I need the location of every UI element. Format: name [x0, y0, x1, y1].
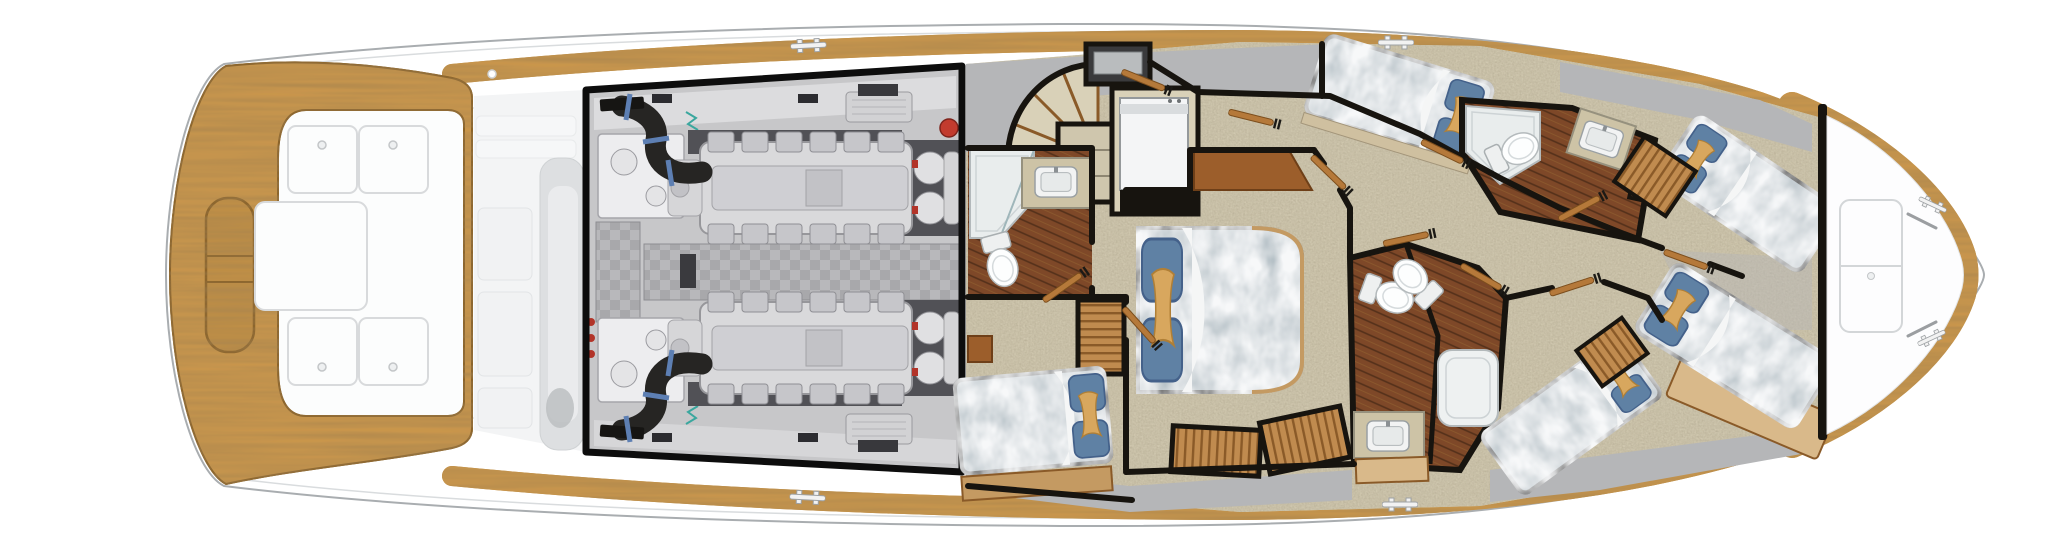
- mezzanine-step: [476, 116, 576, 136]
- laundry: [1112, 88, 1198, 214]
- deck-hatch-engine-access: [255, 202, 367, 310]
- bracket: [652, 94, 672, 103]
- built-in-desk: [1194, 152, 1312, 190]
- mezzanine-module: [478, 388, 532, 428]
- master-berth: [1138, 228, 1302, 392]
- mezzanine-seat-cushion: [548, 186, 578, 422]
- deck-hatch: [359, 318, 428, 385]
- mezzanine-module: [478, 292, 532, 376]
- walkway-grate: [680, 254, 696, 288]
- fire-extinguisher: [940, 119, 958, 137]
- turbo: [914, 152, 946, 184]
- deck-hatch: [359, 126, 428, 193]
- walkway-checker-plate: [596, 222, 640, 322]
- day-head: [968, 148, 1092, 297]
- engine-room: [586, 66, 962, 472]
- accommodations: [954, 34, 1841, 512]
- bow-deck: [1827, 116, 1964, 434]
- cedar-closet: [1078, 300, 1124, 374]
- mezzanine-ghost: [474, 90, 586, 452]
- cabinet-mirror: [1094, 52, 1142, 74]
- step-box: [968, 336, 992, 362]
- vanity-sink: [1035, 167, 1077, 197]
- yacht-floorplan: [0, 0, 2048, 550]
- yacht-floorplan-page: [0, 0, 2048, 550]
- mezzanine-step: [476, 140, 576, 158]
- laundry-counter: [1120, 190, 1198, 212]
- shower-stall: [1438, 350, 1498, 426]
- vanity-sink: [1367, 421, 1409, 451]
- forward-bulkhead-wall: [1818, 104, 1827, 440]
- cabinet-front: [1356, 457, 1429, 483]
- deck-hatch: [288, 318, 357, 385]
- hatch-screw: [1868, 273, 1875, 280]
- turbo: [914, 192, 946, 224]
- mezzanine-pedestal: [546, 388, 574, 428]
- mezzanine-module: [478, 208, 532, 280]
- port-berth: [954, 367, 1112, 474]
- transom-door: [206, 198, 254, 352]
- deck-fitting: [488, 70, 496, 78]
- bracket: [798, 94, 818, 103]
- deck-hatch: [288, 126, 357, 193]
